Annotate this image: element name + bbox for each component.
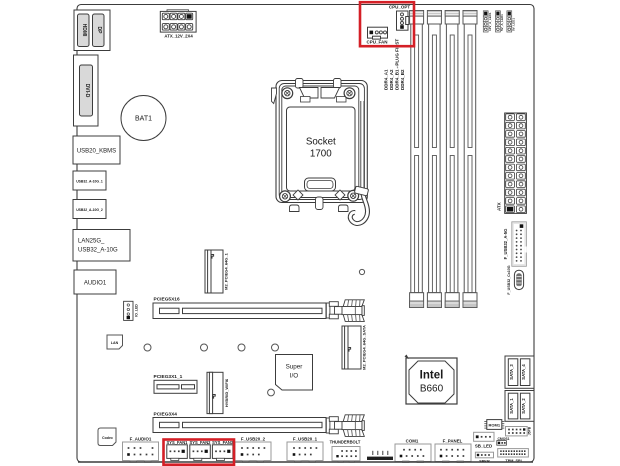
svg-text:USB32_A-10G_2: USB32_A-10G_2	[76, 208, 103, 212]
svg-text:F_USB32_A-5G: F_USB32_A-5G	[503, 229, 508, 260]
svg-text:GEN SW RATE STB: GEN SW RATE STB	[369, 458, 392, 461]
svg-text:Super: Super	[286, 364, 303, 371]
svg-text:ATX_12V_2X4: ATX_12V_2X4	[164, 34, 193, 39]
svg-text:F_PANEL: F_PANEL	[443, 438, 463, 443]
svg-text:J5PB: J5PB	[528, 426, 532, 435]
svg-text:B660: B660	[420, 384, 444, 395]
svg-text:5V_A_LED1: 5V_A_LED1	[500, 14, 504, 31]
svg-text:PCIEG3X1_1: PCIEG3X1_1	[154, 374, 183, 380]
svg-text:PCIEG3X4: PCIEG3X4	[154, 412, 178, 418]
svg-text:CPU_OPT: CPU_OPT	[389, 5, 411, 10]
svg-text:HDMI: HDMI	[81, 24, 87, 37]
svg-text:HYBRID_WIFI6: HYBRID_WIFI6	[224, 378, 229, 407]
svg-text:SATA_2: SATA_2	[521, 398, 526, 414]
svg-text:USB20_KBMS: USB20_KBMS	[77, 149, 116, 155]
svg-text:Socket: Socket	[306, 137, 336, 148]
svg-text:1700: 1700	[310, 149, 332, 160]
svg-text:F_USB20_2: F_USB20_2	[241, 437, 266, 442]
svg-text:12V_A_LED1: 12V_A_LED1	[488, 12, 492, 31]
svg-text:M2_PCIEG4_64G_1: M2_PCIEG4_64G_1	[224, 252, 229, 289]
svg-text:F_AUDIO1: F_AUDIO1	[130, 437, 152, 442]
svg-text:DVI-D: DVI-D	[84, 84, 90, 98]
svg-text:F_USB32_Cx10G: F_USB32_Cx10G	[507, 265, 511, 294]
svg-text:PCIEG5X16: PCIEG5X16	[154, 297, 180, 303]
svg-text:USB32_A-10G: USB32_A-10G	[78, 248, 118, 254]
svg-text:CPU_FAN: CPU_FAN	[366, 40, 387, 45]
svg-text:F_USB20_1: F_USB20_1	[293, 437, 318, 442]
svg-text:SATA_4: SATA_4	[521, 364, 526, 380]
svg-text:USB32_A-10G_1: USB32_A-10G_1	[76, 179, 103, 183]
svg-text:SATA_3: SATA_3	[509, 364, 514, 380]
svg-text:DDR4_A2: DDR4_A2	[389, 69, 394, 90]
svg-text:SATA_1: SATA_1	[509, 398, 514, 414]
svg-text:DDR4_A1: DDR4_A1	[384, 69, 389, 90]
svg-text:LAN: LAN	[111, 341, 119, 345]
svg-text:Intel: Intel	[420, 370, 444, 382]
svg-text:ROM1: ROM1	[489, 423, 501, 428]
svg-text:M2_PCIEG4_64G_SATA: M2_PCIEG4_64G_SATA	[362, 325, 367, 370]
svg-text:COM1: COM1	[406, 438, 419, 443]
svg-text:Codec: Codec	[102, 436, 113, 440]
svg-text:AUDIO1: AUDIO1	[84, 281, 107, 287]
svg-text:SB_LED: SB_LED	[475, 444, 492, 449]
svg-text:ATX: ATX	[497, 202, 502, 211]
svg-text:THUNDERBOLT: THUNDERBOLT	[330, 440, 361, 445]
svg-text:DP: DP	[96, 27, 102, 35]
svg-text:BAT1: BAT1	[135, 116, 152, 123]
svg-text:LAN25G_: LAN25G_	[78, 239, 105, 245]
svg-text:5V_LED1: 5V_LED1	[512, 18, 516, 31]
svg-text:DDR4_B2: DDR4_B2	[400, 69, 405, 90]
svg-text:IO_LED: IO_LED	[135, 304, 139, 317]
svg-text:I/O: I/O	[290, 373, 298, 380]
